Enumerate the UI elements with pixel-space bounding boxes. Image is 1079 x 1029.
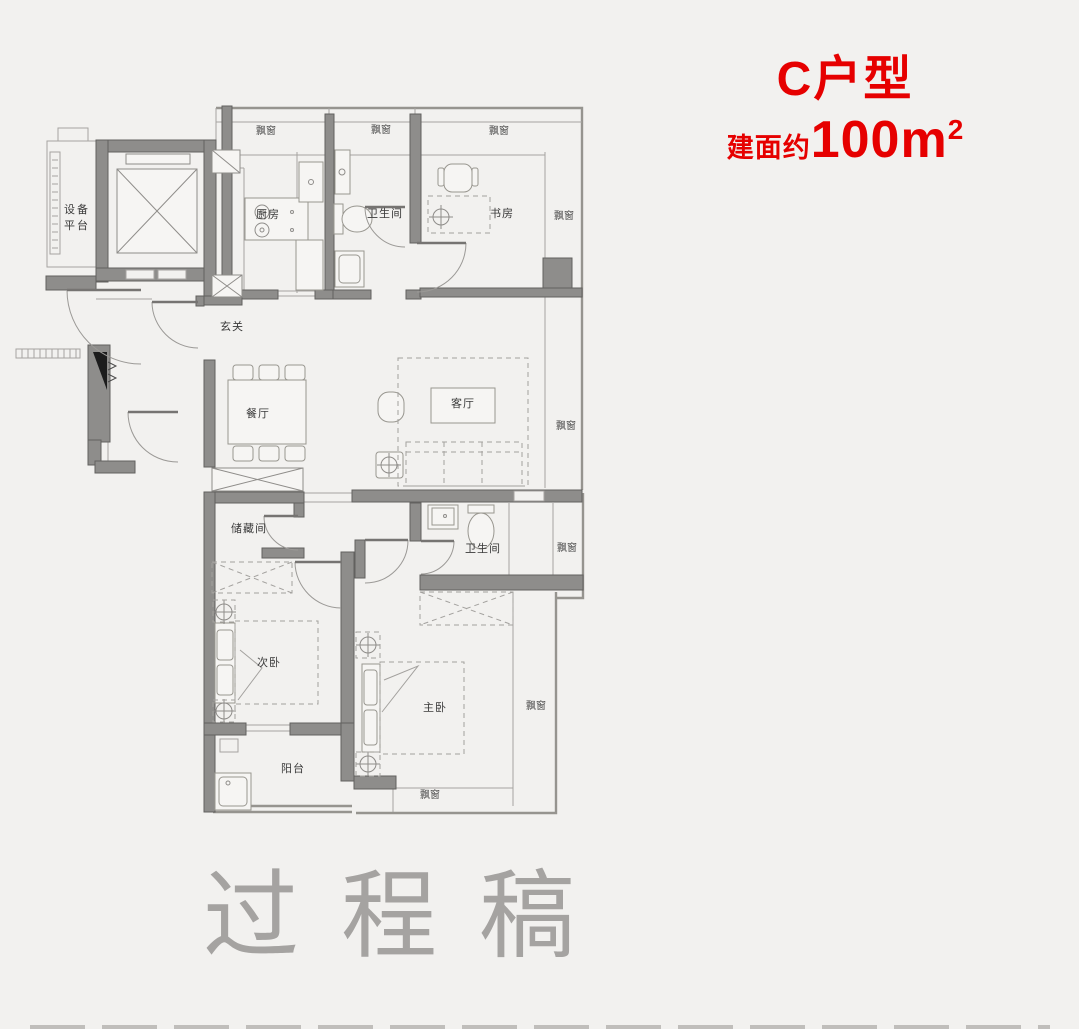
area-prefix: 建面约 bbox=[727, 126, 811, 165]
room-label-master-bedroom: 主卧 bbox=[405, 702, 465, 715]
area-exponent: 2 bbox=[948, 114, 964, 146]
room-label-equipment-platform: 设备平台 bbox=[59, 202, 95, 234]
room-label-storage-room: 储藏间 bbox=[219, 523, 279, 536]
bay-window-label: 飘窗 bbox=[408, 789, 452, 802]
room-label-balcony: 阳台 bbox=[263, 763, 323, 776]
room-label-bathroom-upper: 卫生间 bbox=[355, 208, 415, 221]
bay-window-label: 飘窗 bbox=[359, 124, 403, 137]
bay-window-label: 飘窗 bbox=[545, 542, 589, 555]
bay-window-label: 飘窗 bbox=[477, 125, 521, 138]
room-label-study: 书房 bbox=[472, 208, 532, 221]
bottom-edge-strip bbox=[30, 1025, 1050, 1029]
title-block: C户型 建面约 100m 2 bbox=[695, 52, 995, 166]
room-label-dining-room: 餐厅 bbox=[228, 408, 288, 421]
room-label-secondary-bedroom: 次卧 bbox=[239, 657, 299, 670]
bay-window-label: 飘窗 bbox=[542, 210, 586, 223]
room-label-foyer: 玄关 bbox=[202, 321, 262, 334]
room-label-kitchen: 厨房 bbox=[238, 209, 298, 222]
bay-window-label: 飘窗 bbox=[514, 700, 558, 713]
room-label-living-room: 客厅 bbox=[433, 398, 493, 411]
area-number: 100m bbox=[811, 114, 948, 166]
room-label-bathroom-lower: 卫生间 bbox=[453, 543, 513, 556]
watermark-text: 过程稿 bbox=[203, 866, 617, 966]
area-line: 建面约 100m 2 bbox=[695, 114, 995, 166]
bay-window-label: 飘窗 bbox=[544, 420, 588, 433]
unit-name: C户型 bbox=[695, 52, 995, 108]
bay-window-label: 飘窗 bbox=[244, 125, 288, 138]
floor-plan-page: 设备平台 厨房 卫生间 书房 玄关 餐厅 客厅 储藏间 卫生间 次卧 主卧 阳台… bbox=[0, 0, 1079, 1029]
